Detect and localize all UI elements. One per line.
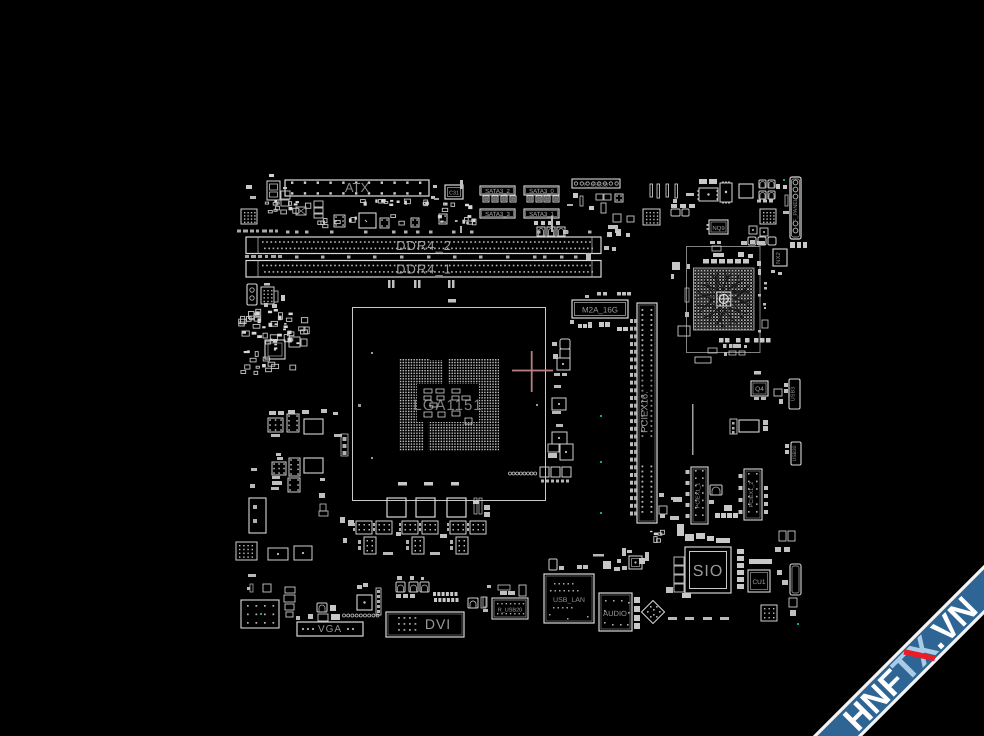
svg-text:PCIEX1_2: PCIEX1_2 [749, 482, 755, 508]
svg-text:R_USB20: R_USB20 [498, 608, 522, 614]
svg-text:F_USB30: F_USB30 [584, 183, 608, 189]
svg-text:SATA3_0: SATA3_0 [529, 188, 554, 195]
svg-text:ATX: ATX [345, 180, 370, 195]
svg-text:Q4: Q4 [755, 386, 764, 393]
svg-text:C31: C31 [449, 191, 459, 197]
svg-text:F_PANEL: F_PANEL [793, 198, 799, 222]
svg-text:PCIEX1_1: PCIEX1_1 [696, 483, 702, 509]
svg-text:CU1: CU1 [752, 579, 765, 586]
svg-text:SATA3_3: SATA3_3 [485, 211, 510, 218]
svg-text:USB30: USB30 [792, 445, 798, 461]
svg-text:SIO: SIO [693, 563, 724, 580]
svg-text:USB3: USB3 [791, 387, 797, 401]
svg-text:DDR4_2: DDR4_2 [396, 238, 452, 253]
svg-text:SATA3_1: SATA3_1 [529, 211, 554, 218]
svg-text:SATA3_2: SATA3_2 [485, 188, 510, 195]
svg-text:NX2: NX2 [775, 252, 782, 264]
svg-text:AUDIO: AUDIO [603, 609, 627, 618]
svg-text:PCIEX16.: PCIEX16. [640, 391, 651, 433]
svg-text:USB_LAN: USB_LAN [553, 597, 585, 604]
svg-text:VGA: VGA [318, 624, 342, 635]
svg-text:DVI: DVI [425, 616, 451, 632]
svg-text:DDR4_1: DDR4_1 [396, 261, 452, 276]
svg-text:M2A_16G: M2A_16G [582, 306, 618, 315]
svg-text:NQ9: NQ9 [712, 225, 725, 232]
